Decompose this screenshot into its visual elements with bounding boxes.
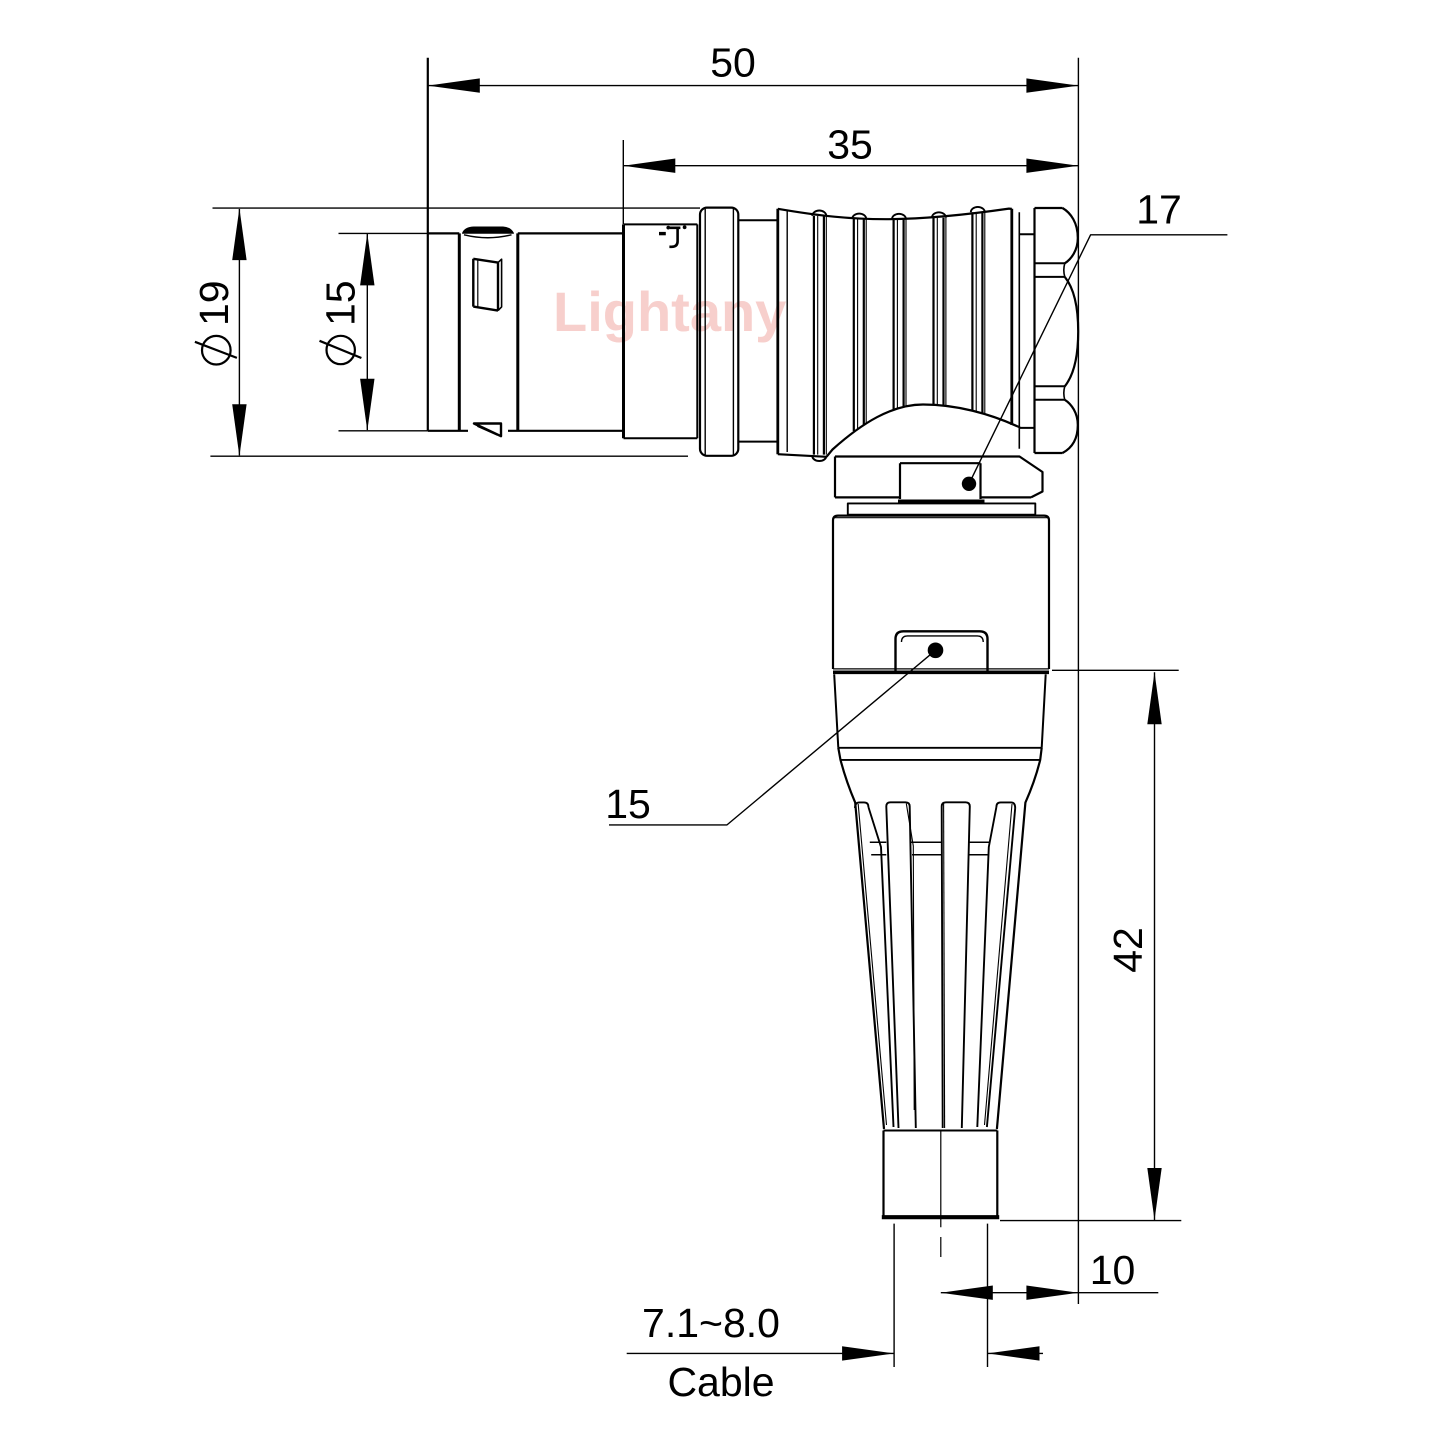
svg-text:Cable: Cable bbox=[667, 1359, 774, 1405]
svg-text:42: 42 bbox=[1105, 927, 1151, 973]
svg-text:15: 15 bbox=[605, 781, 651, 827]
svg-text:17: 17 bbox=[1136, 187, 1182, 233]
svg-text:15: 15 bbox=[318, 280, 364, 326]
svg-text:50: 50 bbox=[710, 40, 756, 86]
svg-text:19: 19 bbox=[191, 280, 237, 326]
svg-text:10: 10 bbox=[1090, 1247, 1136, 1293]
svg-text:7.1~8.0: 7.1~8.0 bbox=[642, 1300, 780, 1346]
svg-text:35: 35 bbox=[827, 122, 873, 168]
